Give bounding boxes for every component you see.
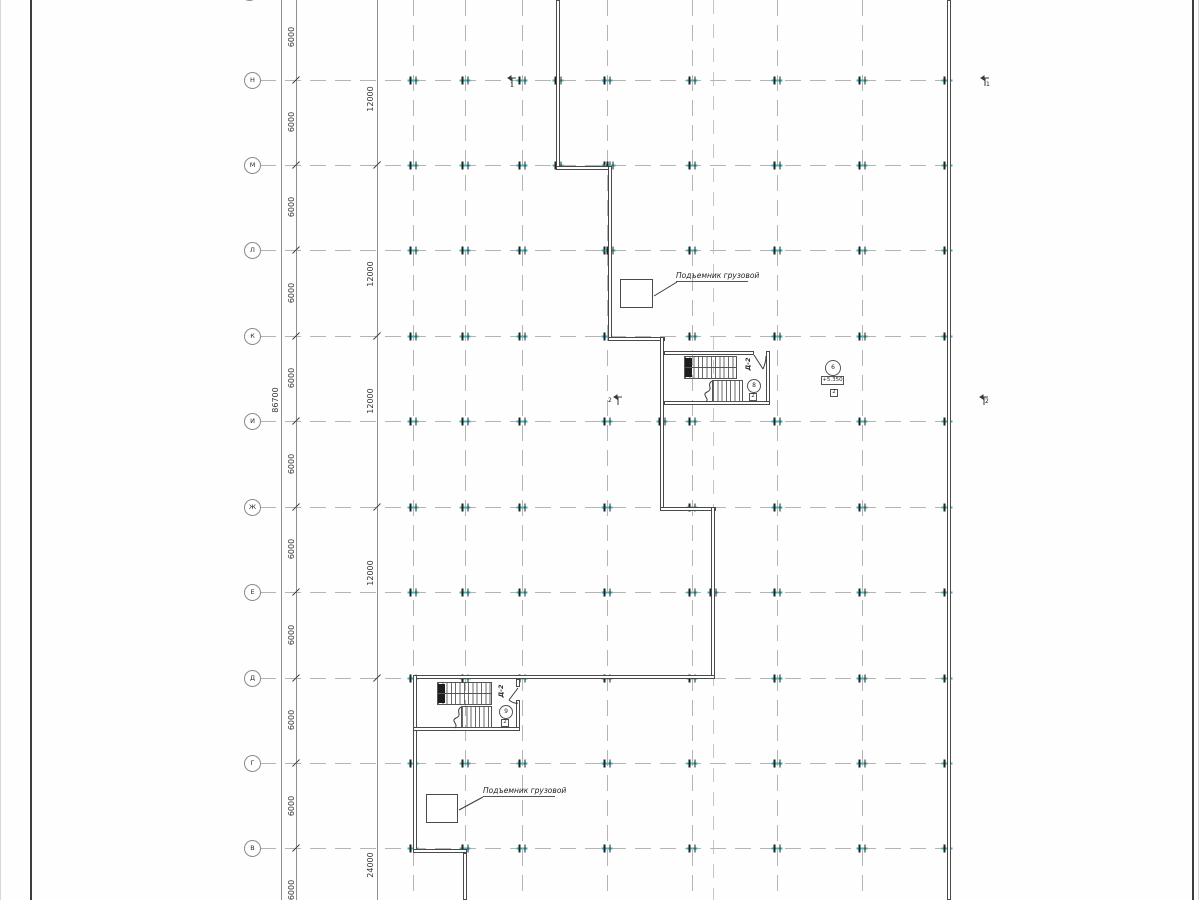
axis-intersection-tick xyxy=(687,246,698,255)
dim-line-6000 xyxy=(296,0,297,900)
axis-intersection-tick xyxy=(408,332,419,341)
axis-intersection-tick xyxy=(602,417,613,426)
grid-row-bubble-Л: Л xyxy=(244,242,261,259)
wall-segment xyxy=(660,507,716,511)
axis-intersection-tick xyxy=(460,332,471,341)
axis-intersection-tick xyxy=(687,759,698,768)
grid-row-bubble-Е: Е xyxy=(244,584,261,601)
axis-intersection-tick xyxy=(602,588,613,597)
leader-underline xyxy=(676,281,748,282)
marker-circle: 9 xyxy=(499,705,513,719)
axis-intersection-tick xyxy=(857,332,868,341)
wall-segment xyxy=(413,675,715,679)
axis-intersection-tick xyxy=(460,76,471,85)
axis-intersection-tick xyxy=(772,503,783,512)
axis-intersection-tick xyxy=(857,76,868,85)
grid-row-bubble-И: И xyxy=(244,413,261,430)
axis-intersection-tick xyxy=(408,246,419,255)
axis-intersection-tick xyxy=(772,588,783,597)
sheet-edge xyxy=(0,0,1,900)
wall-segment xyxy=(556,0,560,170)
marker-circle: 6 xyxy=(825,360,841,376)
wall-segment xyxy=(664,351,754,355)
axis-intersection-tick xyxy=(517,246,528,255)
sheet-frame-line xyxy=(30,0,32,900)
wall-segment xyxy=(660,337,664,511)
axis-intersection-tick xyxy=(772,161,783,170)
grid-row-bubble-М: М xyxy=(244,157,261,174)
axis-intersection-tick xyxy=(408,161,419,170)
wall-segment xyxy=(711,507,715,679)
dim-line-total xyxy=(281,0,282,900)
grid-row-bubble-Ж: Ж xyxy=(244,499,261,516)
wall-segment xyxy=(947,0,951,900)
freight-elevator-shaft xyxy=(426,794,458,823)
axis-intersection-tick xyxy=(408,503,419,512)
freight-elevator-shaft xyxy=(620,279,653,308)
axis-intersection-tick xyxy=(687,161,698,170)
axis-intersection-tick xyxy=(408,588,419,597)
dim-label-6000: 6000 xyxy=(288,195,296,219)
elevation-mark: +5.350 xyxy=(821,376,844,385)
wall-segment xyxy=(463,853,467,900)
freight-elevator-label: Подъемник грузовой xyxy=(676,271,759,280)
drawing-layer: НМЛКИЖЕДГВ600060006000600060006000600060… xyxy=(0,0,1200,900)
axis-intersection-tick xyxy=(602,76,613,85)
axis-intersection-tick xyxy=(602,503,613,512)
axis-intersection-tick xyxy=(460,246,471,255)
dim-label-6000: 6000 xyxy=(288,623,296,647)
dim-label-span: 12000 xyxy=(367,84,375,113)
freight-elevator-label: Подъемник грузовой xyxy=(483,786,566,795)
wall-segment xyxy=(766,351,770,405)
stair-flight-divider xyxy=(437,693,492,694)
axis-intersection-tick xyxy=(857,246,868,255)
stair-flight xyxy=(712,380,743,402)
door-tag: Д-2 xyxy=(744,357,752,370)
axis-intersection-tick xyxy=(687,417,698,426)
dim-label-span: 12000 xyxy=(367,558,375,587)
wall-segment xyxy=(516,679,520,687)
grid-row-bubble-Н: Н xyxy=(244,72,261,89)
stair-first-tread xyxy=(438,684,445,693)
section-mark-number: 2 xyxy=(985,399,989,405)
axis-intersection-tick xyxy=(687,332,698,341)
axis-intersection-tick xyxy=(687,844,698,853)
leader-underline xyxy=(483,796,555,797)
grid-row-bubble-Г: Г xyxy=(244,755,261,772)
axis-intersection-tick xyxy=(460,588,471,597)
axis-intersection-tick xyxy=(772,76,783,85)
axis-intersection-tick xyxy=(408,417,419,426)
axis-intersection-tick xyxy=(857,844,868,853)
axis-intersection-tick xyxy=(517,588,528,597)
section-mark-number: 2 xyxy=(608,398,612,404)
wall-segment xyxy=(413,675,417,853)
axis-intersection-tick xyxy=(772,844,783,853)
dim-label-span: 24000 xyxy=(367,850,375,879)
axis-intersection-tick xyxy=(772,417,783,426)
sheet-frame-line xyxy=(1192,0,1194,900)
wall-segment xyxy=(413,849,467,853)
grid-row-bubble-partial xyxy=(241,0,258,1)
axis-intersection-tick xyxy=(857,588,868,597)
axis-intersection-tick xyxy=(460,759,471,768)
axis-intersection-tick xyxy=(460,417,471,426)
section-mark-number: 1 xyxy=(986,82,990,88)
dim-label-6000: 6000 xyxy=(288,110,296,134)
axis-intersection-tick xyxy=(517,417,528,426)
wall-segment xyxy=(608,166,612,341)
stair-first-tread xyxy=(685,358,692,367)
floor-plan-sheet: НМЛКИЖЕДГВ600060006000600060006000600060… xyxy=(0,0,1200,900)
axis-intersection-tick xyxy=(772,246,783,255)
dim-label-6000: 6000 xyxy=(288,794,296,818)
wall-segment xyxy=(608,337,665,341)
dim-label-total: 86700 xyxy=(272,385,280,414)
dim-label-span: 12000 xyxy=(367,386,375,415)
axis-intersection-tick xyxy=(460,161,471,170)
dim-label-6000: 6000 xyxy=(288,25,296,49)
axis-intersection-tick xyxy=(687,76,698,85)
axis-intersection-tick xyxy=(857,417,868,426)
axis-intersection-tick xyxy=(772,674,783,683)
dim-label-6000: 6000 xyxy=(288,708,296,732)
door-tag: Д-2 xyxy=(497,684,505,697)
axis-intersection-tick xyxy=(517,759,528,768)
marker-square: 2 xyxy=(830,389,838,397)
stair-first-tread xyxy=(438,694,445,703)
axis-intersection-tick xyxy=(460,503,471,512)
axis-intersection-tick xyxy=(857,759,868,768)
dim-line-12000 xyxy=(377,0,378,900)
axis-intersection-tick xyxy=(602,844,613,853)
dim-label-6000: 6000 xyxy=(288,281,296,305)
dim-label-6000: 6000 xyxy=(288,452,296,476)
axis-intersection-tick xyxy=(517,76,528,85)
axis-intersection-tick xyxy=(857,161,868,170)
wall-segment xyxy=(556,166,612,170)
marker-square: 2 xyxy=(749,393,757,401)
dim-label-6000: 6000 xyxy=(288,366,296,390)
axis-intersection-tick xyxy=(772,332,783,341)
axis-intersection-tick xyxy=(517,844,528,853)
grid-aux-column-line xyxy=(713,0,714,900)
dim-label-6000: 6000 xyxy=(288,537,296,561)
dim-label-6000: 6000 xyxy=(288,878,296,900)
axis-intersection-tick xyxy=(857,674,868,683)
grid-row-bubble-В: В xyxy=(244,840,261,857)
marker-square: 2 xyxy=(501,719,509,727)
grid-row-bubble-Д: Д xyxy=(244,670,261,687)
sheet-edge xyxy=(1198,0,1199,900)
marker-circle: 8 xyxy=(747,379,761,393)
axis-intersection-tick xyxy=(517,332,528,341)
dim-label-span: 12000 xyxy=(367,259,375,288)
axis-intersection-tick xyxy=(408,76,419,85)
grid-row-bubble-К: К xyxy=(244,328,261,345)
axis-intersection-tick xyxy=(857,503,868,512)
stair-flight xyxy=(461,706,492,728)
axis-intersection-tick xyxy=(772,759,783,768)
section-mark-number: 1 xyxy=(510,83,514,89)
axis-intersection-tick xyxy=(517,503,528,512)
axis-intersection-tick xyxy=(602,759,613,768)
axis-intersection-tick xyxy=(517,161,528,170)
stair-first-tread xyxy=(685,368,692,377)
axis-intersection-tick xyxy=(687,588,698,597)
